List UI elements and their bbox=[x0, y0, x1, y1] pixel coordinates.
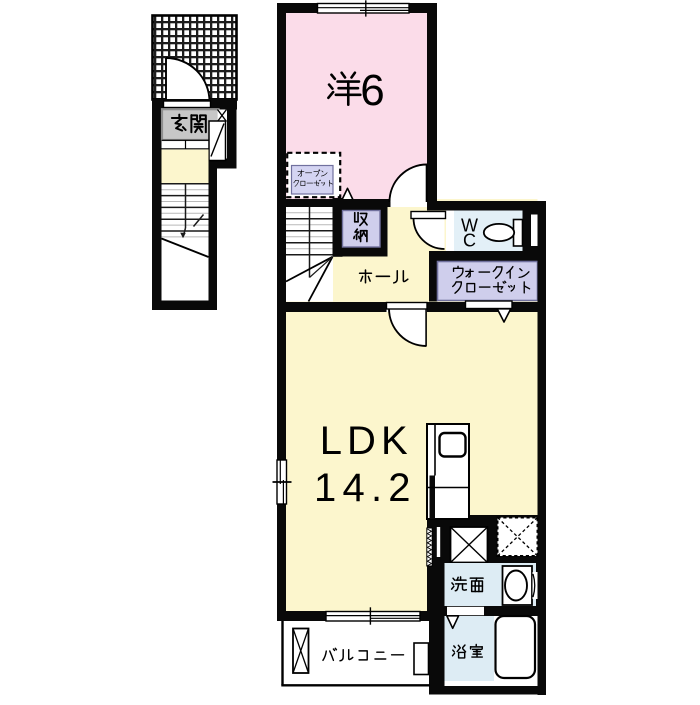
svg-text:C: C bbox=[463, 231, 476, 251]
svg-text:LDK: LDK bbox=[320, 419, 408, 463]
svg-text:14.2: 14.2 bbox=[314, 466, 411, 510]
svg-text:6: 6 bbox=[360, 66, 384, 115]
